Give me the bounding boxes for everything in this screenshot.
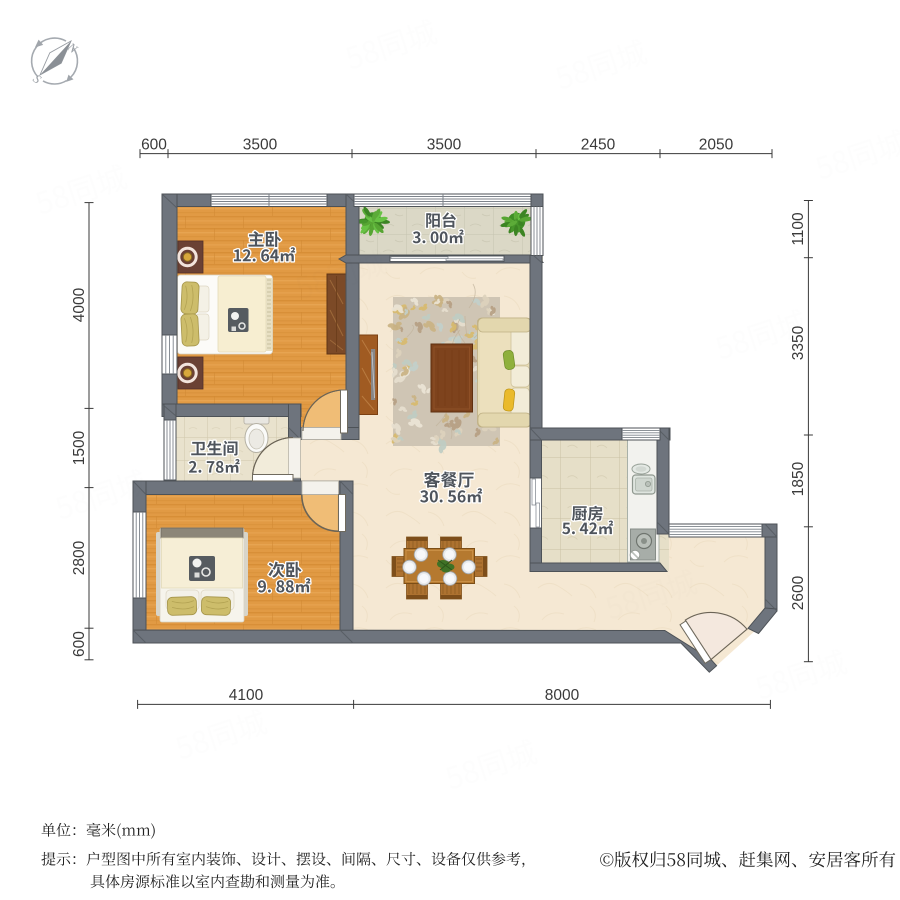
svg-text:600: 600: [71, 631, 88, 657]
svg-text:600: 600: [141, 137, 167, 154]
svg-text:4100: 4100: [229, 687, 264, 704]
svg-text:2600: 2600: [790, 575, 807, 610]
svg-text:1850: 1850: [790, 461, 807, 496]
svg-text:1100: 1100: [790, 212, 807, 246]
svg-text:2800: 2800: [71, 540, 88, 575]
svg-text:8000: 8000: [545, 687, 580, 704]
svg-text:4000: 4000: [71, 287, 88, 322]
svg-text:3500: 3500: [243, 137, 278, 154]
svg-text:1500: 1500: [71, 430, 88, 465]
svg-text:2450: 2450: [581, 137, 616, 154]
svg-text:3350: 3350: [790, 325, 807, 360]
svg-text:2050: 2050: [699, 137, 734, 154]
svg-text:3500: 3500: [427, 137, 462, 154]
